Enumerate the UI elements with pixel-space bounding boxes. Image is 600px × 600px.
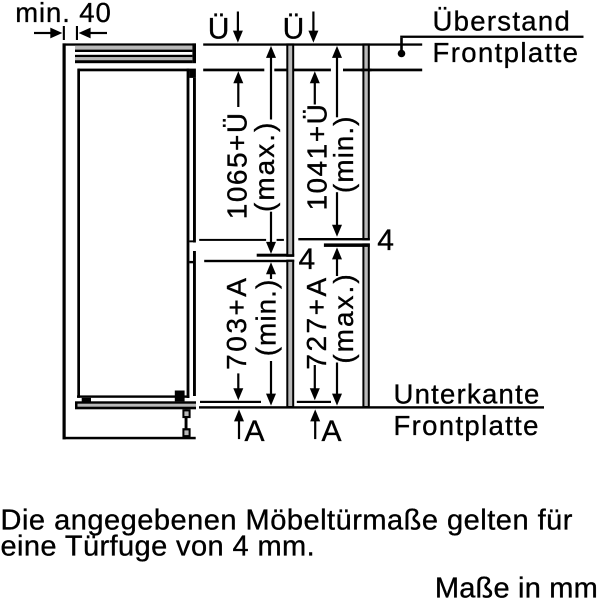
- svg-text:(max.): (max.): [249, 121, 280, 212]
- svg-text:eine Türfuge von 4 mm.: eine Türfuge von 4 mm.: [1, 531, 316, 563]
- svg-text:703+A: 703+A: [221, 276, 252, 370]
- svg-text:(min.): (min.): [251, 279, 282, 357]
- svg-text:Überstand: Überstand: [433, 5, 572, 36]
- svg-text:4: 4: [299, 243, 316, 276]
- svg-text:Ü: Ü: [283, 13, 305, 46]
- svg-text:Frontplatte: Frontplatte: [394, 410, 540, 441]
- svg-text:A: A: [322, 415, 342, 448]
- svg-text:Unterkante: Unterkante: [394, 379, 541, 410]
- svg-text:4: 4: [377, 224, 394, 257]
- svg-text:(max.): (max.): [328, 272, 359, 363]
- svg-text:1065+Ü: 1065+Ü: [222, 111, 253, 219]
- svg-text:A: A: [245, 415, 265, 448]
- svg-text:(min.): (min.): [328, 116, 359, 194]
- svg-text:Ü: Ü: [208, 13, 230, 46]
- svg-text:Maße in mm: Maße in mm: [435, 573, 598, 600]
- svg-text:min. 40: min. 40: [15, 0, 111, 28]
- svg-text:Frontplatte: Frontplatte: [433, 37, 580, 68]
